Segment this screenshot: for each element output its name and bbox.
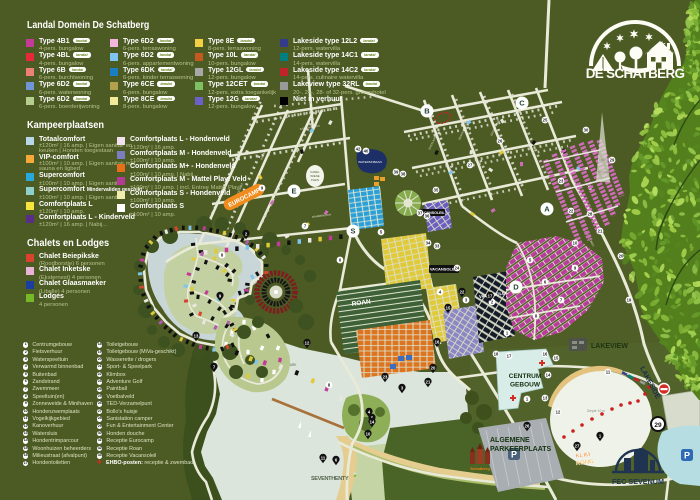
svg-text:25: 25 — [543, 118, 548, 123]
svg-text:11: 11 — [321, 455, 326, 460]
svg-text:13: 13 — [543, 396, 548, 401]
svg-text:CENTRUM: CENTRUM — [509, 373, 542, 380]
svg-text:34: 34 — [426, 241, 431, 246]
svg-text:17: 17 — [488, 293, 493, 298]
svg-text:S: S — [350, 227, 355, 236]
svg-text:13: 13 — [194, 333, 199, 338]
svg-text:Schatberg: Schatberg — [470, 466, 490, 471]
svg-text:16: 16 — [543, 352, 548, 357]
svg-text:37: 37 — [418, 211, 423, 216]
svg-text:P: P — [684, 451, 690, 461]
svg-text:40: 40 — [364, 149, 369, 154]
svg-text:FEC SEVENUM: FEC SEVENUM — [612, 477, 664, 486]
svg-text:23: 23 — [383, 374, 388, 379]
svg-text:33: 33 — [435, 244, 440, 249]
svg-text:SPARRENLAAN: SPARRENLAAN — [312, 212, 332, 219]
svg-text:10: 10 — [366, 431, 371, 436]
svg-text:18: 18 — [494, 352, 499, 357]
svg-text:WATERSKIBAAN: WATERSKIBAAN — [358, 160, 382, 164]
svg-text:14: 14 — [370, 419, 375, 424]
svg-text:17: 17 — [507, 354, 512, 359]
svg-text:10: 10 — [573, 241, 578, 246]
svg-text:15: 15 — [446, 305, 451, 310]
svg-text:26: 26 — [525, 423, 530, 428]
svg-text:29: 29 — [654, 422, 662, 429]
svg-text:12: 12 — [556, 410, 561, 415]
svg-text:23: 23 — [559, 179, 564, 184]
svg-text:SEVENTHENTY: SEVENTHENTY — [311, 476, 349, 482]
svg-text:12: 12 — [305, 340, 310, 345]
svg-text:29: 29 — [610, 158, 615, 163]
svg-text:🍃: 🍃 — [352, 471, 358, 477]
svg-text:E: E — [291, 187, 296, 196]
svg-text:26: 26 — [498, 139, 503, 144]
svg-text:20: 20 — [431, 365, 436, 370]
svg-text:16: 16 — [435, 339, 440, 344]
svg-text:ALGEMENE: ALGEMENE — [490, 437, 530, 444]
svg-text:19: 19 — [627, 298, 632, 303]
svg-text:35: 35 — [434, 188, 439, 193]
svg-text:42: 42 — [356, 147, 361, 152]
svg-text:LAKEVIEW: LAKEVIEW — [591, 343, 628, 350]
svg-text:PLEIN: PLEIN — [311, 178, 319, 182]
svg-text:22: 22 — [460, 289, 465, 294]
svg-text:36: 36 — [425, 214, 430, 219]
svg-text:DE SCHATBERG: DE SCHATBERG — [586, 66, 685, 81]
svg-text:PARKEERPLAATS: PARKEERPLAATS — [490, 446, 552, 453]
svg-text:21: 21 — [426, 379, 431, 384]
svg-text:22: 22 — [569, 209, 574, 214]
svg-text:24: 24 — [455, 266, 460, 271]
svg-text:A: A — [544, 205, 550, 214]
svg-text:39: 39 — [394, 170, 399, 175]
svg-text:15: 15 — [554, 356, 559, 361]
svg-text:27: 27 — [468, 163, 473, 168]
svg-text:14: 14 — [546, 373, 551, 378]
svg-text:D: D — [513, 283, 519, 292]
svg-text:21: 21 — [598, 229, 603, 234]
svg-text:30: 30 — [584, 128, 589, 133]
svg-text:38: 38 — [401, 172, 406, 177]
svg-text:11: 11 — [606, 370, 611, 375]
svg-text:27: 27 — [575, 443, 580, 448]
svg-text:GEBOUW: GEBOUW — [510, 382, 541, 389]
svg-text:28: 28 — [588, 212, 593, 217]
svg-text:C: C — [519, 99, 525, 108]
svg-text:B: B — [424, 107, 430, 116]
